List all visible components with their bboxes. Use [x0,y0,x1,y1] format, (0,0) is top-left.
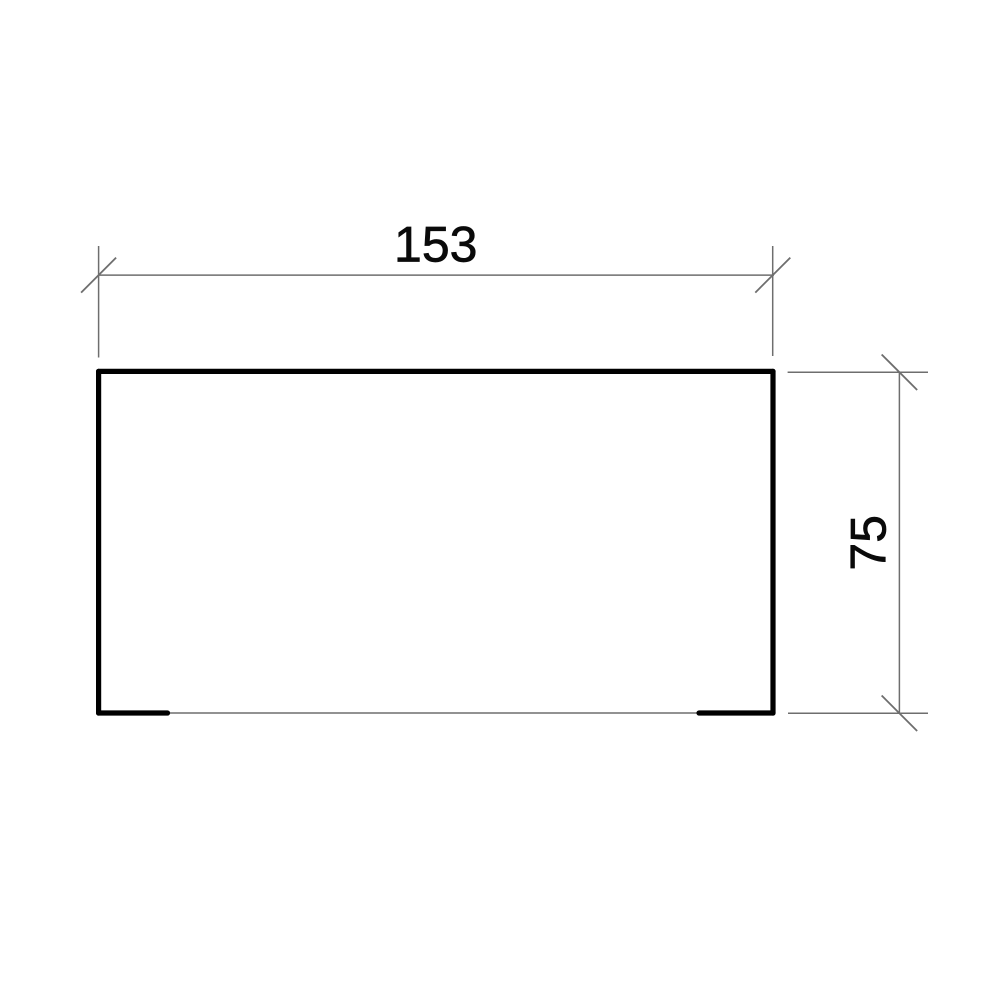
svg-text:153: 153 [394,217,477,273]
svg-text:75: 75 [841,515,897,571]
